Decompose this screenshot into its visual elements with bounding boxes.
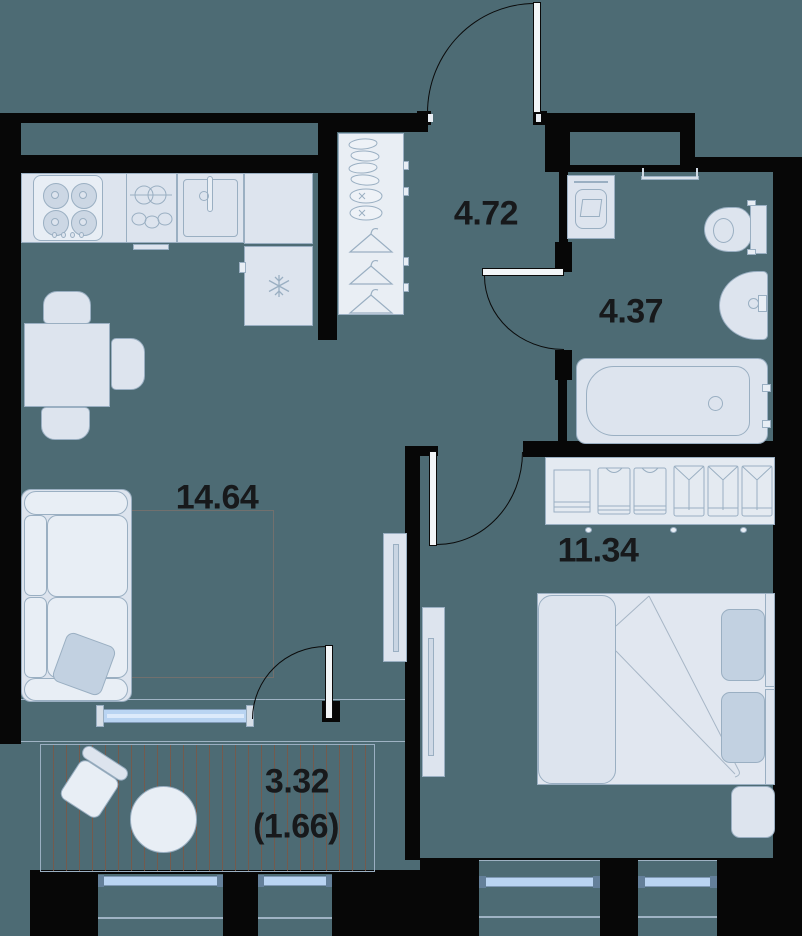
- dining-chair-bottom: [41, 407, 90, 440]
- basin-faucet-base: [758, 295, 767, 312]
- window-cap: [326, 875, 332, 887]
- balcony-table-icon: [130, 786, 197, 853]
- wardrobe-hinge-mark: [403, 187, 409, 196]
- balcony-bottom-wall: [30, 870, 420, 936]
- bedroom-door-swing-arc: [437, 452, 523, 545]
- facade-line: [638, 916, 717, 918]
- dishwasher-handle: [133, 244, 169, 250]
- bathtub-tap: [762, 420, 771, 428]
- facade-bay-balcony-right: [258, 874, 332, 936]
- bedroom-area-label: 11.34: [558, 532, 639, 571]
- facade-line: [258, 917, 332, 919]
- bathroom-top-wall: [545, 113, 695, 172]
- bedroom-bottom-wall: [420, 858, 802, 936]
- bathroom-door-swing-arc: [484, 276, 564, 350]
- window-cap: [258, 875, 264, 887]
- sofa-back-cushion: [24, 515, 47, 596]
- hanger-icon: [371, 229, 378, 234]
- bathtub-tap: [762, 384, 771, 392]
- dining-table-icon: [24, 323, 110, 407]
- balcony-area-label: 3.32: [265, 763, 329, 802]
- window-cap: [593, 876, 600, 888]
- dining-chair-right: [111, 338, 145, 390]
- wardrobe-hinge-mark: [403, 161, 409, 170]
- living-tv-icon: [383, 533, 407, 662]
- hanger-icon: [371, 290, 378, 295]
- entry-frame-mark-right: [536, 114, 541, 122]
- wardrobe-foot: [670, 527, 677, 533]
- bedroom-tv-icon: [422, 607, 445, 777]
- shoe-icon: [351, 150, 379, 161]
- fridge: [244, 246, 313, 326]
- bathroom-area-label: 4.37: [599, 293, 663, 332]
- stove-icon: [33, 175, 103, 241]
- bathtub-drain-icon: [708, 396, 723, 411]
- balcony-door-leaf: [325, 645, 333, 719]
- cistern-button: [747, 249, 756, 255]
- entry-wardrobe-contents: [339, 134, 403, 314]
- facade-window-icon: [483, 877, 596, 887]
- wardrobe-hinge-mark: [403, 257, 409, 266]
- facade-window-icon: [262, 876, 328, 886]
- entry-door-leaf: [533, 2, 541, 113]
- sofa-armrest-top: [24, 491, 128, 515]
- bathroom-door-leaf: [482, 268, 564, 276]
- window-cap: [710, 876, 717, 888]
- bath-left-wall-lower: [558, 378, 567, 448]
- nightstand: [731, 786, 775, 838]
- top-right-exterior-wall: [695, 157, 802, 172]
- washing-machine-icon: [567, 175, 615, 239]
- wardrobe-hinge-mark: [403, 283, 409, 292]
- living-room-area-label: 14.64: [176, 479, 259, 518]
- shoe-icon: [349, 138, 378, 150]
- bathtub-inner: [586, 366, 750, 436]
- bed-pillow-icon: [721, 692, 765, 763]
- kitchen-window-niche: [21, 123, 318, 155]
- window-cap: [217, 875, 223, 887]
- floor-plan-canvas: 14.64 4.72 4.37 11.34 3.32 (1.66): [0, 0, 802, 936]
- duct-shaft-niche: [570, 132, 680, 165]
- shoe-icon: [349, 162, 377, 173]
- left-exterior-wall: [0, 113, 21, 744]
- entry-wardrobe: [338, 133, 404, 315]
- snowflake-icon: [266, 273, 292, 299]
- dining-chair-top: [43, 291, 91, 324]
- towel-rail-bracket: [642, 168, 644, 177]
- window-cap: [98, 875, 104, 887]
- bath-door-jamb-bottom: [555, 350, 572, 380]
- sofa-seat-cushion: [47, 515, 128, 597]
- cistern-button: [747, 200, 756, 206]
- toilet-cistern: [750, 205, 767, 254]
- bed-pillow-icon: [721, 609, 765, 681]
- pots-icon: [127, 174, 176, 242]
- window-cap: [479, 876, 486, 888]
- towel-rail-bracket: [696, 168, 698, 177]
- facade-window-icon: [642, 877, 713, 887]
- bedroom-wardrobe: [545, 457, 775, 525]
- window-frame-cap: [96, 705, 104, 727]
- shoe-icon: [351, 174, 380, 186]
- balcony-reduced-area-label: (1.66): [253, 808, 339, 847]
- hallway-area-label: 4.72: [454, 195, 518, 234]
- toilet-icon: [704, 207, 753, 252]
- bedroom-door-leaf: [429, 451, 437, 546]
- faucet-handle-icon: [199, 191, 209, 201]
- facade-line: [98, 917, 223, 919]
- fridge-door-hinge: [239, 262, 246, 273]
- sneaker-icon: [350, 189, 382, 203]
- basin-faucet-icon: [748, 298, 759, 309]
- hanger-icon: [371, 261, 378, 266]
- right-exterior-wall: [773, 172, 802, 862]
- wardrobe-contents: [546, 458, 774, 524]
- facade-window-icon: [102, 876, 219, 886]
- facade-bay-bedroom-right: [638, 860, 717, 936]
- kitchen-top-wall: [0, 113, 320, 173]
- living-bedroom-divider-wall: [405, 446, 420, 860]
- facade-line: [479, 916, 600, 918]
- kitchen-hall-divider-wall: [318, 113, 337, 340]
- facade-bay-bedroom-left: [479, 860, 600, 936]
- entry-frame-mark-left: [428, 114, 433, 122]
- shelf-icon: [554, 470, 590, 512]
- window-cap: [638, 876, 645, 888]
- towel-rail-icon: [641, 176, 699, 180]
- balcony-window-icon: [103, 709, 248, 723]
- corner-counter: [244, 173, 313, 244]
- rug-outline: [128, 510, 274, 678]
- entry-door-swing-arc: [427, 3, 535, 113]
- cookware-counter-section: [126, 173, 177, 243]
- tshirt-icon: [634, 468, 666, 514]
- sofa-back-cushion: [24, 597, 47, 678]
- facade-bay-balcony-left: [98, 874, 223, 936]
- tshirt-icon: [598, 468, 630, 514]
- sneaker-icon: [350, 206, 382, 220]
- wardrobe-foot: [740, 527, 747, 533]
